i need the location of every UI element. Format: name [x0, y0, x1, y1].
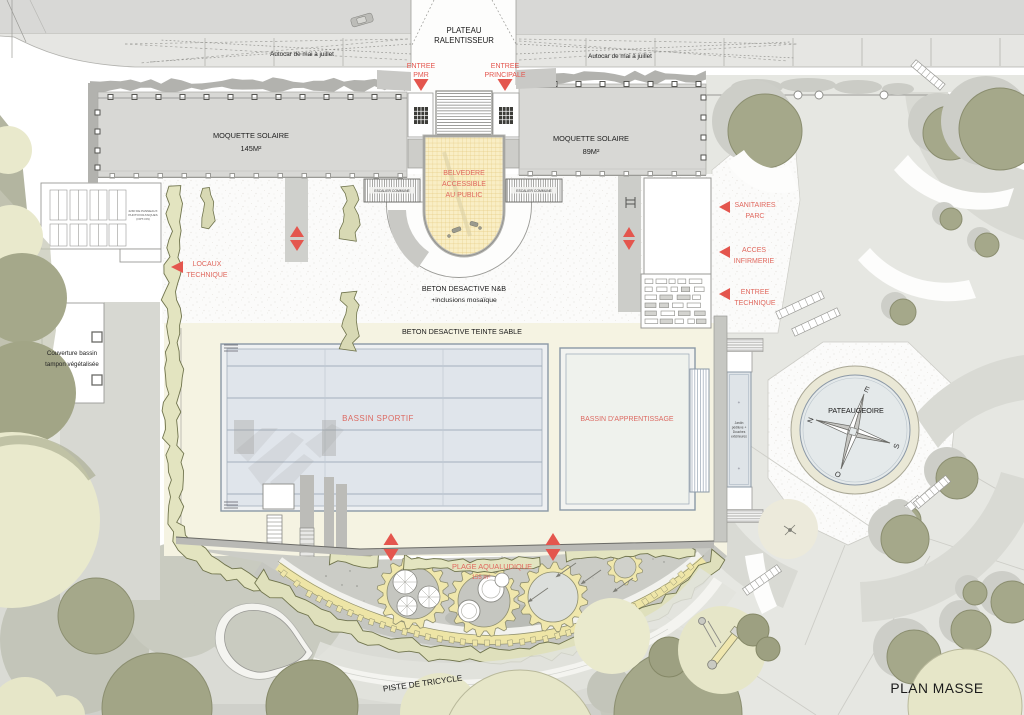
svg-text:BASSIN D'APPRENTISSAGE: BASSIN D'APPRENTISSAGE: [580, 416, 673, 423]
svg-text:MOQUETTE SOLAIRE: MOQUETTE SOLAIRE: [553, 134, 629, 143]
svg-text:PLAGE AQUALUDIQUE: PLAGE AQUALUDIQUE: [452, 562, 532, 571]
svg-text:PMR: PMR: [413, 72, 429, 79]
svg-text:BASSIN SPORTIF: BASSIN SPORTIF: [342, 414, 414, 423]
svg-text:TECHNIQUE: TECHNIQUE: [734, 300, 776, 307]
svg-text:ENTREE: ENTREE: [407, 63, 436, 70]
svg-text:RALENTISSEUR: RALENTISSEUR: [434, 36, 494, 45]
svg-text:LOCAUX: LOCAUX: [193, 261, 222, 268]
svg-text:PARC: PARC: [746, 213, 765, 220]
svg-text:Couverture bassin: Couverture bassin: [47, 350, 98, 357]
svg-text:Douches: Douches: [733, 430, 746, 434]
svg-text:MOQUETTE SOLAIRE: MOQUETTE SOLAIRE: [213, 131, 289, 140]
svg-text:BETON DESACTIVE TEINTE SABLE: BETON DESACTIVE TEINTE SABLE: [402, 327, 522, 336]
svg-text:INFIRMERIE: INFIRMERIE: [734, 258, 775, 265]
svg-text:extérieures: extérieures: [731, 435, 747, 439]
svg-text:ACCESSIBLE: ACCESSIBLE: [442, 181, 486, 188]
svg-text:ENTREE: ENTREE: [741, 289, 770, 296]
svg-text:ENTREE: ENTREE: [491, 63, 520, 70]
svg-text:89M²: 89M²: [583, 147, 600, 156]
svg-text:ACCES: ACCES: [742, 247, 766, 254]
svg-text:+inclusions mosaïque: +inclusions mosaïque: [431, 297, 497, 304]
svg-text:Autocar de mai à juillet: Autocar de mai à juillet: [270, 51, 334, 58]
svg-text:AU PUBLIC: AU PUBLIC: [446, 192, 483, 199]
svg-text:ESCALIER COMMUNE: ESCALIER COMMUNE: [374, 189, 410, 193]
svg-text:PLATEAU: PLATEAU: [447, 26, 482, 35]
svg-text:pédiluve +: pédiluve +: [732, 426, 747, 430]
svg-text:PRINCIPALE: PRINCIPALE: [484, 72, 525, 79]
svg-text:+: +: [738, 466, 741, 471]
svg-text:+: +: [738, 400, 741, 405]
svg-text:BELVEDERE: BELVEDERE: [443, 170, 485, 177]
svg-text:Autocar de mai à juillet: Autocar de mai à juillet: [588, 53, 652, 60]
svg-text:ESCALIER COMMUNE: ESCALIER COMMUNE: [516, 189, 552, 193]
svg-text:155 m²: 155 m²: [472, 575, 491, 581]
svg-text:TECHNIQUE: TECHNIQUE: [186, 272, 228, 279]
svg-text:BETON DESACTIVE N&B: BETON DESACTIVE N&B: [422, 284, 506, 293]
svg-text:PATEAUGEOIRE: PATEAUGEOIRE: [828, 406, 884, 415]
svg-text:PLAN MASSE: PLAN MASSE: [890, 681, 983, 696]
svg-text:(OPT-ON): (OPT-ON): [136, 217, 150, 221]
svg-text:145M²: 145M²: [241, 144, 262, 153]
svg-text:SANITAIRES: SANITAIRES: [734, 202, 775, 209]
svg-text:tampon végétalisée: tampon végétalisée: [45, 361, 99, 368]
svg-text:Jardin: Jardin: [735, 421, 744, 425]
